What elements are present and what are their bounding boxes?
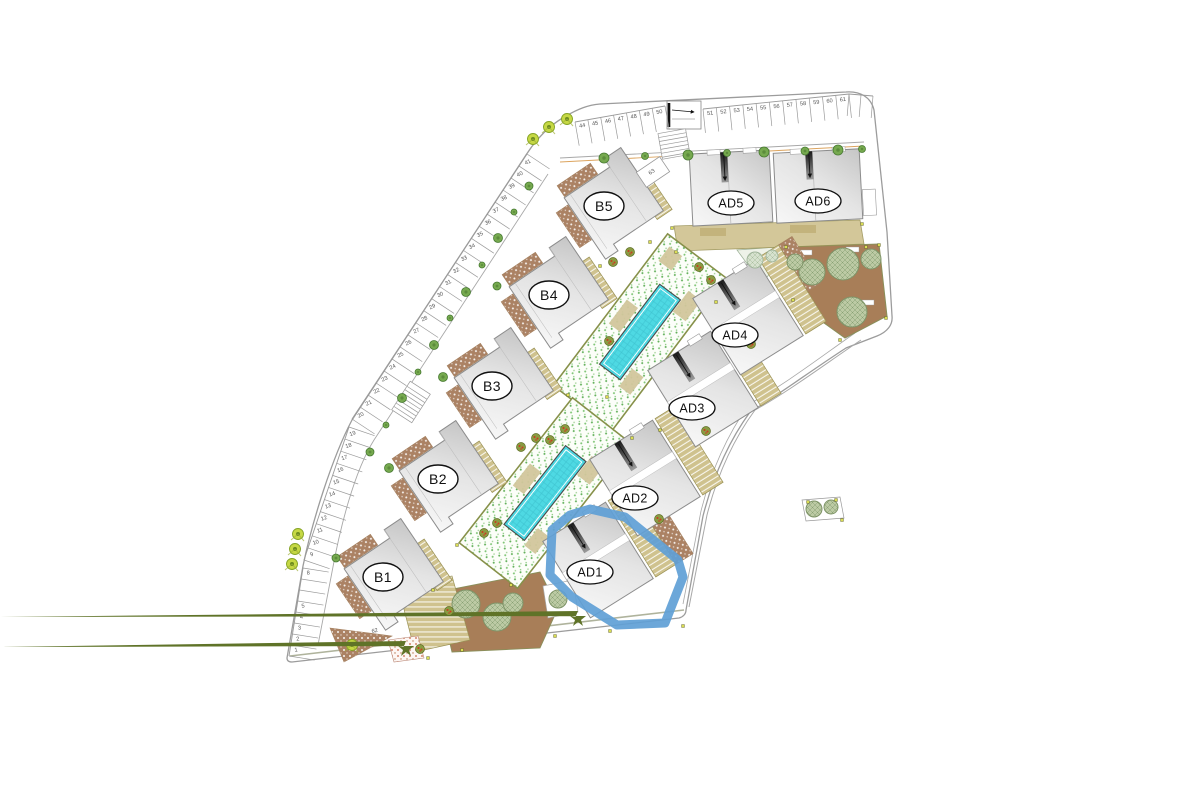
svg-text:AD2: AD2 — [622, 492, 647, 506]
marker-dot — [649, 241, 652, 244]
terrace-step — [700, 228, 726, 236]
parking-number: 61 — [840, 97, 847, 104]
marker-dot — [510, 584, 513, 587]
flower-tree-icon — [480, 529, 489, 538]
parking-number: 47 — [617, 116, 624, 123]
label-ad1[interactable]: AD1 — [567, 560, 613, 584]
svg-text:B5: B5 — [595, 198, 613, 214]
flower-tree-icon — [655, 515, 664, 524]
road-tree-icon — [801, 147, 809, 155]
road-tree-icon — [447, 315, 453, 321]
marker-dot — [785, 246, 788, 249]
flower-tree-icon — [609, 258, 618, 267]
flower-tree-icon — [695, 263, 704, 272]
marker-dot — [631, 437, 634, 440]
road-tree-icon — [332, 554, 340, 562]
terrace-step — [790, 225, 816, 233]
road-tree-icon — [724, 150, 731, 157]
svg-text:B2: B2 — [429, 471, 447, 487]
lime-tree-icon — [291, 529, 304, 542]
marker-dot — [554, 635, 557, 638]
road-tree-icon — [398, 394, 407, 403]
marker-dot — [659, 429, 662, 432]
label-b1[interactable]: B1 — [363, 563, 403, 591]
marker-dot — [865, 246, 868, 249]
svg-text:AD3: AD3 — [679, 402, 704, 416]
marker-dot — [606, 396, 609, 399]
marker-dot — [456, 544, 459, 547]
road-tree-icon — [642, 153, 649, 160]
marker-dot — [792, 299, 795, 302]
road-tree-icon — [439, 373, 448, 382]
flower-tree-icon — [546, 436, 555, 445]
marker-dot — [461, 649, 464, 652]
label-b2[interactable]: B2 — [418, 465, 458, 493]
flower-tree-icon — [416, 645, 425, 654]
flower-tree-icon — [445, 607, 454, 616]
road-tree-icon — [385, 464, 394, 473]
parking-number: 54 — [747, 106, 754, 113]
parking-number: 58 — [800, 101, 807, 108]
sage-tree-icon — [837, 297, 867, 327]
sage-tree-icon — [861, 249, 881, 269]
flower-tree-icon — [707, 276, 716, 285]
parking-number: 55 — [760, 105, 767, 112]
marker-dot — [682, 625, 685, 628]
road-tree-icon — [430, 341, 439, 350]
parking-number: 53 — [733, 108, 740, 115]
flower-tree-icon — [605, 337, 614, 346]
garage-ramp — [667, 101, 701, 129]
pale-tree-icon — [747, 252, 763, 268]
marker-dot — [432, 589, 435, 592]
label-ad3[interactable]: AD3 — [669, 396, 715, 420]
parking-number: 50 — [656, 109, 663, 116]
road-tree-icon — [462, 288, 471, 297]
svg-text:AD6: AD6 — [805, 195, 830, 209]
road-tree-icon — [833, 145, 843, 155]
road-tree-icon — [383, 422, 389, 428]
parking-number: 56 — [773, 104, 780, 111]
road-tree-icon — [494, 234, 503, 243]
road-tree-icon — [759, 147, 769, 157]
marker-dot — [609, 630, 612, 633]
pale-tree-icon — [766, 250, 778, 262]
sage-tree-icon — [824, 500, 838, 514]
label-ad6[interactable]: AD6 — [795, 189, 841, 213]
marker-dot — [671, 227, 674, 230]
label-ad5[interactable]: AD5 — [708, 191, 754, 215]
road-tree-icon — [525, 182, 533, 190]
marker-dot — [567, 394, 570, 397]
marker-dot — [599, 265, 602, 268]
parking-number-62: 62 — [371, 628, 378, 635]
flower-tree-icon — [626, 248, 635, 257]
parking-number: 45 — [592, 120, 599, 127]
marker-dot — [675, 251, 678, 254]
flower-tree-icon — [493, 519, 502, 528]
road-tree-icon — [859, 146, 866, 153]
road-tree-icon — [415, 369, 421, 375]
label-b3[interactable]: B3 — [472, 372, 512, 400]
road-tree-icon — [366, 448, 374, 456]
flower-tree-icon — [532, 434, 541, 443]
parking-number: 49 — [643, 111, 650, 118]
label-b5[interactable]: B5 — [584, 192, 624, 220]
site-plan-drawing: 1234589101112131415161718192021222324252… — [0, 0, 1200, 800]
marker-dot — [878, 244, 881, 247]
parking-number: 51 — [707, 110, 714, 117]
marker-dot — [839, 339, 842, 342]
marker-dot — [427, 657, 430, 660]
svg-text:B4: B4 — [540, 287, 558, 303]
sage-tree-icon — [503, 593, 523, 613]
parking-number: 57 — [786, 102, 793, 109]
lime-tree-icon — [285, 559, 298, 572]
label-ad4[interactable]: AD4 — [712, 323, 758, 347]
lime-tree-icon — [526, 134, 539, 147]
flower-tree-icon — [702, 427, 711, 436]
parking-number: 48 — [630, 114, 637, 121]
parking-number: 44 — [579, 123, 586, 130]
marker-dot — [861, 223, 864, 226]
road-tree-icon — [511, 209, 517, 215]
svg-text:AD1: AD1 — [577, 566, 602, 580]
svg-text:AD5: AD5 — [718, 197, 743, 211]
label-b4[interactable]: B4 — [529, 281, 569, 309]
parking-number: 60 — [826, 98, 833, 105]
svg-text:B1: B1 — [374, 569, 392, 585]
site-plan-canvas: 1234589101112131415161718192021222324252… — [0, 0, 1200, 800]
marker-dot — [885, 317, 888, 320]
parking-number: 52 — [720, 109, 727, 116]
road-tree-icon — [599, 153, 609, 163]
road-tree-icon — [493, 282, 501, 290]
parking-number: 46 — [605, 118, 612, 125]
parking-number: 59 — [813, 100, 820, 107]
flower-tree-icon — [561, 425, 570, 434]
road-tree-icon — [479, 262, 485, 268]
sage-tree-icon — [787, 254, 803, 270]
svg-text:B3: B3 — [483, 378, 501, 394]
label-ad2[interactable]: AD2 — [612, 486, 658, 510]
sage-tree-icon — [827, 248, 859, 280]
marker-dot — [807, 501, 810, 504]
marker-dot — [835, 499, 838, 502]
road-tree-icon — [683, 150, 693, 160]
svg-text:AD4: AD4 — [722, 329, 747, 343]
marker-dot — [841, 519, 844, 522]
marker-dot — [715, 301, 718, 304]
lime-tree-icon — [288, 544, 301, 557]
flower-tree-icon — [517, 443, 526, 452]
